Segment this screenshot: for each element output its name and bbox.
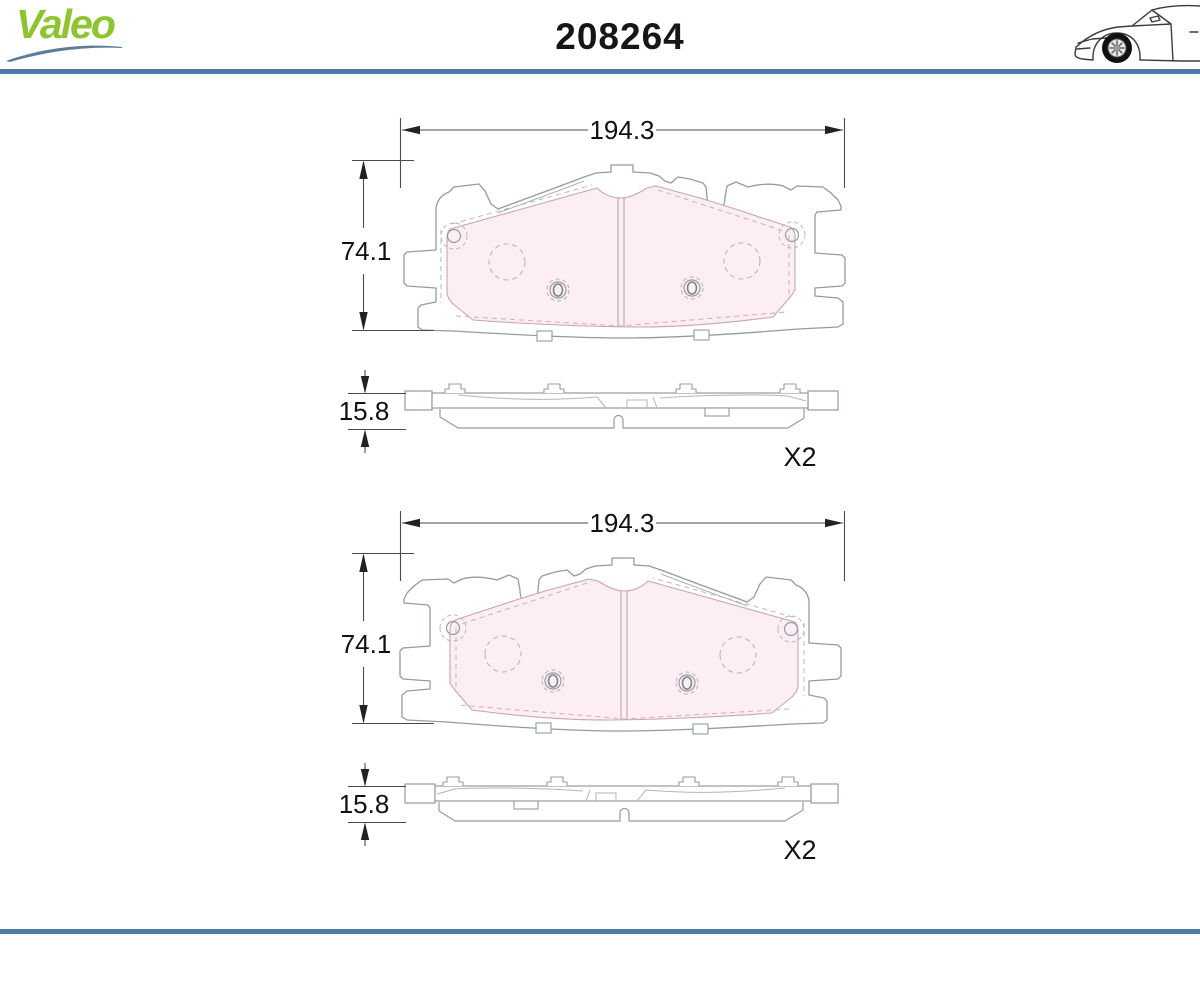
page-title-part-number: 208264 <box>450 16 790 58</box>
width-dimension-label: 194.3 <box>589 508 654 538</box>
page: Valeo 208264 <box>0 0 1200 1000</box>
height-dimension-label: 74.1 <box>341 236 392 266</box>
quantity-label: X2 <box>783 442 816 472</box>
pad-front-view <box>400 558 841 734</box>
footer-rule <box>0 929 1200 934</box>
width-dimension-label: 194.3 <box>589 115 654 145</box>
brake-pad-drawing-2: 194.3 74.1 15.8 X2 <box>0 493 1200 893</box>
brake-pad-drawing-1: 194.3 74.1 15.8 X2 <box>0 100 1200 500</box>
car-side-icon <box>1072 2 1200 66</box>
pad-side-view <box>405 384 838 428</box>
quantity-label: X2 <box>783 835 816 865</box>
height-dimension-label: 74.1 <box>341 629 392 659</box>
thickness-dimension-label: 15.8 <box>339 396 390 426</box>
pad-side-view <box>405 777 838 821</box>
thickness-dimension-label: 15.8 <box>339 789 390 819</box>
valeo-logo: Valeo <box>14 2 134 64</box>
swoosh-icon <box>4 44 126 62</box>
pad-front-view <box>404 165 845 341</box>
header-rule <box>0 69 1200 74</box>
brand-name: Valeo <box>16 2 114 46</box>
